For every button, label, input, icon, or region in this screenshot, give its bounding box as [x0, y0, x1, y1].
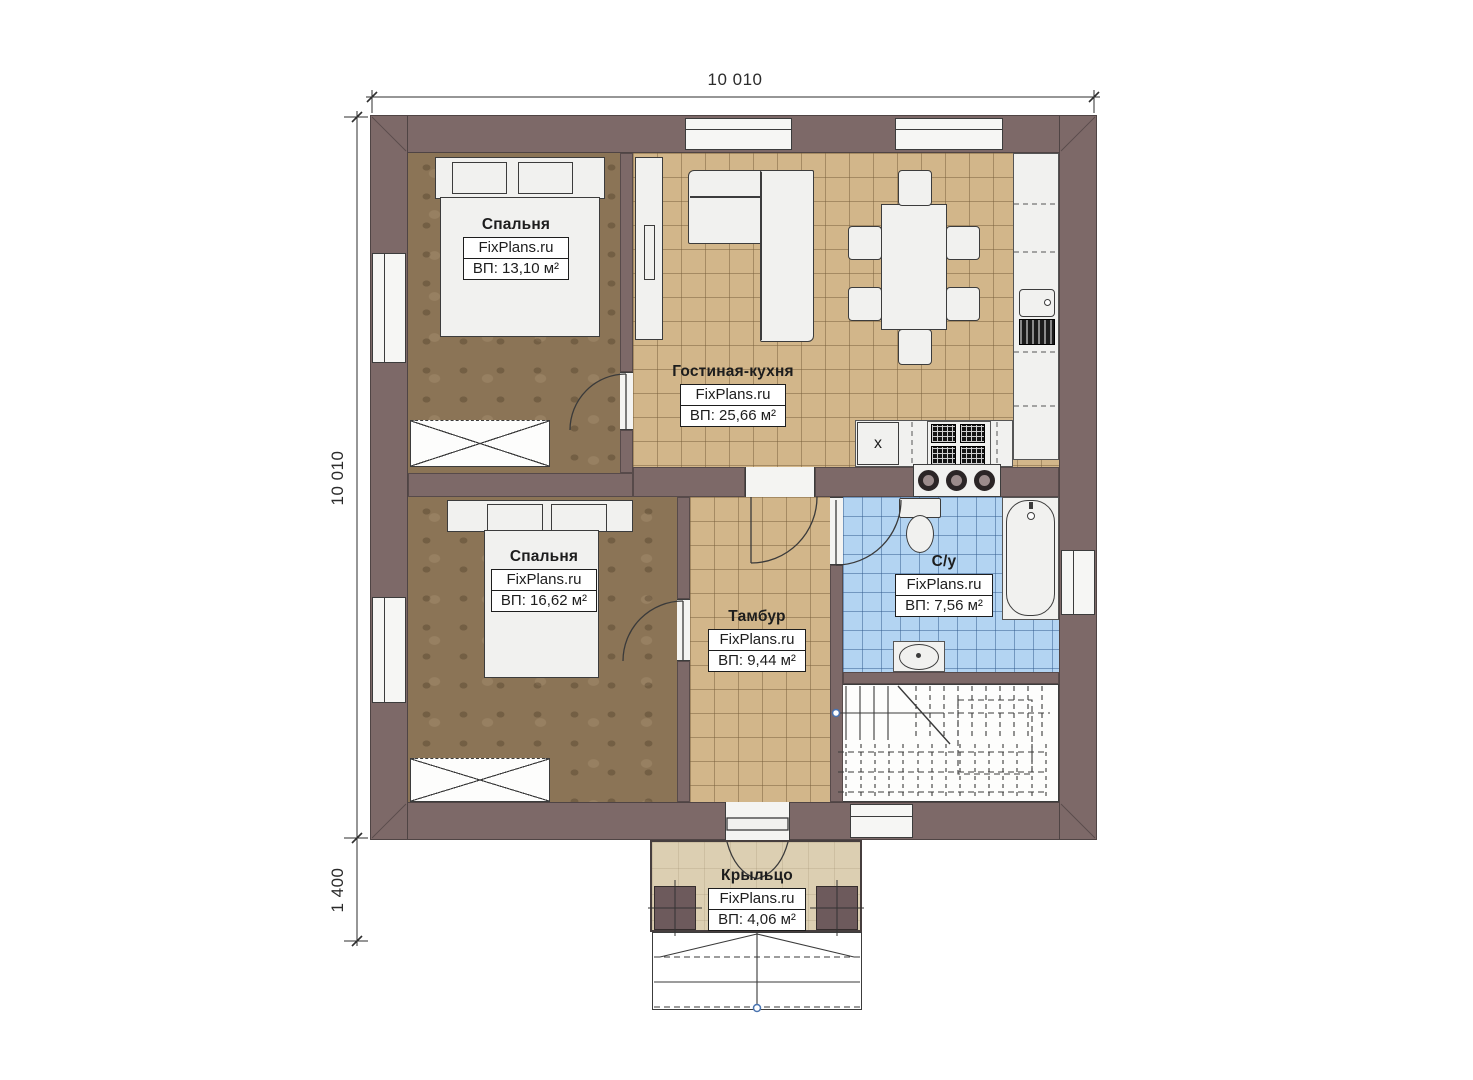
floor-plan: x: [0, 0, 1473, 1080]
watermark: FixPlans.ru: [709, 889, 805, 909]
room-name: Спальня: [441, 215, 591, 234]
knob: [918, 470, 939, 491]
window-bathroom: [1061, 550, 1095, 615]
bed1-pillow-left: [452, 162, 507, 194]
sofa-seam: [690, 196, 760, 198]
entry-steps: [652, 932, 862, 1010]
bathroom-sink-drain: [916, 653, 921, 658]
dining-chair-right-2: [946, 287, 980, 321]
room-label-tambour: Тамбур FixPlans.ru ВП: 9,44 м²: [682, 607, 832, 672]
window-top-1: [685, 118, 792, 150]
tall-cabinet-handle: [644, 225, 655, 280]
dining-chair-top: [898, 170, 932, 206]
wall-bedroom1-bedroom2: [408, 473, 633, 497]
room-name: Спальня: [469, 547, 619, 566]
room-info-box: FixPlans.ru ВП: 7,56 м²: [895, 574, 993, 617]
wall-bedroom1-living: [620, 430, 633, 473]
dining-chair-left-2: [848, 287, 882, 321]
wall-bedroom2-tambour: [677, 661, 690, 802]
bed2-pillow-right: [551, 504, 607, 532]
watermark: FixPlans.ru: [492, 570, 596, 590]
room-name: Гостиная-кухня: [658, 362, 808, 381]
room-area: ВП: 16,62 м²: [492, 590, 596, 611]
dining-table: [881, 204, 947, 330]
room-name: Тамбур: [682, 607, 832, 626]
window-stairs: [850, 804, 913, 838]
room-label-bedroom2: Спальня FixPlans.ru ВП: 16,62 м²: [469, 547, 619, 612]
room-label-bathroom: С/у FixPlans.ru ВП: 7,56 м²: [869, 552, 1019, 617]
stove-burner: [960, 424, 985, 443]
bed1-pillow-right: [518, 162, 573, 194]
kitchen-sink-faucet: [1044, 299, 1051, 306]
stove-burner: [931, 446, 956, 465]
window-bedroom1: [372, 253, 406, 363]
room-info-box: FixPlans.ru ВП: 25,66 м²: [680, 384, 786, 427]
wall-living-tambour: [633, 467, 745, 497]
exterior-wall-left: [370, 115, 408, 840]
bed2-pillow-left: [487, 504, 543, 532]
room-label-porch: Крыльцо FixPlans.ru ВП: 4,06 м²: [682, 866, 832, 931]
kitchen-sink-drainer: [1019, 319, 1055, 345]
door-opening-bathroom: [830, 497, 843, 565]
entrance-door-opening: [725, 802, 790, 840]
stove-burner: [931, 424, 956, 443]
dimension-width-label: 10 010: [660, 70, 810, 90]
window-bedroom2: [372, 597, 406, 703]
dimension-height-label: 10 010: [328, 428, 348, 528]
staircase-area: [832, 684, 1059, 802]
wall-bedroom1-living: [620, 153, 633, 372]
dining-chair-right-1: [946, 226, 980, 260]
dimension-porch-label: 1 400: [328, 840, 348, 940]
room-info-box: FixPlans.ru ВП: 4,06 м²: [708, 888, 806, 931]
room-area: ВП: 25,66 м²: [681, 405, 785, 426]
room-area: ВП: 9,44 м²: [709, 650, 805, 671]
dining-chair-bottom: [898, 329, 932, 365]
watermark: FixPlans.ru: [681, 385, 785, 405]
wardrobe-bedroom2: [410, 758, 550, 802]
watermark: FixPlans.ru: [464, 238, 568, 258]
door-opening-bedroom1: [620, 372, 633, 430]
knob: [974, 470, 995, 491]
exterior-wall-right: [1059, 115, 1097, 840]
bathtub-tap: [1029, 502, 1033, 509]
wall-bedroom2-tambour: [677, 497, 690, 599]
knob: [946, 470, 967, 491]
wardrobe-bedroom1: [410, 420, 550, 467]
sofa-seam: [760, 172, 762, 340]
room-area: ВП: 13,10 м²: [464, 258, 568, 279]
room-area: ВП: 4,06 м²: [709, 909, 805, 930]
stove-burner: [960, 446, 985, 465]
wall-tambour-bathroom: [830, 565, 843, 802]
room-label-living-kitchen: Гостиная-кухня FixPlans.ru ВП: 25,66 м²: [658, 362, 808, 427]
room-name: С/у: [869, 552, 1019, 571]
dishwasher-label: x: [874, 435, 882, 453]
room-info-box: FixPlans.ru ВП: 13,10 м²: [463, 237, 569, 280]
room-name: Крыльцо: [682, 866, 832, 885]
wall-bathroom-stairs: [843, 672, 1059, 684]
room-area: ВП: 7,56 м²: [896, 595, 992, 616]
dishwasher-box: x: [857, 422, 899, 465]
window-top-2: [895, 118, 1003, 150]
room-info-box: FixPlans.ru ВП: 9,44 м²: [708, 629, 806, 672]
room-info-box: FixPlans.ru ВП: 16,62 м²: [491, 569, 597, 612]
door-opening-living-tambour: [745, 467, 815, 497]
dining-chair-left-1: [848, 226, 882, 260]
watermark: FixPlans.ru: [896, 575, 992, 595]
bathtub-faucet: [1027, 512, 1035, 520]
sofa-vertical-section: [760, 170, 814, 342]
room-label-bedroom1: Спальня FixPlans.ru ВП: 13,10 м²: [441, 215, 591, 280]
toilet-bowl: [906, 515, 934, 553]
watermark: FixPlans.ru: [709, 630, 805, 650]
